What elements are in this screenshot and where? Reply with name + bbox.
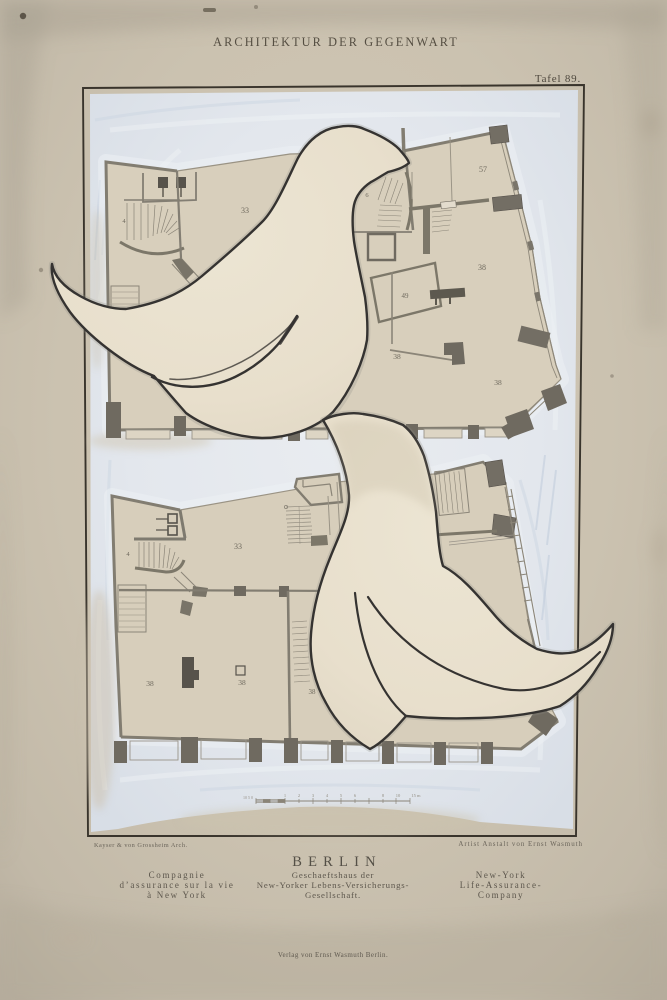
svg-text:Kayser & von Grossheim Arch.: Kayser & von Grossheim Arch. bbox=[94, 842, 188, 849]
svg-text:Geschaeftshaus der: Geschaeftshaus der bbox=[292, 870, 375, 880]
svg-text:2: 2 bbox=[298, 793, 300, 798]
svg-text:49: 49 bbox=[402, 292, 410, 300]
svg-text:Compagnie: Compagnie bbox=[149, 870, 206, 880]
svg-text:38: 38 bbox=[478, 263, 486, 272]
svg-text:10: 10 bbox=[396, 793, 401, 798]
svg-text:Life-Assurance-: Life-Assurance- bbox=[460, 880, 542, 890]
svg-text:Tafel 89.: Tafel 89. bbox=[535, 73, 581, 85]
svg-text:Company: Company bbox=[478, 890, 524, 900]
svg-text:New-York: New-York bbox=[476, 870, 526, 880]
svg-text:38: 38 bbox=[309, 688, 317, 696]
svg-text:Artist Anstalt von Ernst Wasmu: Artist Anstalt von Ernst Wasmuth bbox=[458, 840, 583, 848]
svg-text:15 m: 15 m bbox=[411, 793, 421, 798]
svg-text:33: 33 bbox=[241, 206, 249, 215]
svg-text:ARCHITEKTUR DER GEGENWART: ARCHITEKTUR DER GEGENWART bbox=[213, 35, 459, 49]
svg-text:57: 57 bbox=[479, 165, 487, 174]
svg-text:BERLIN: BERLIN bbox=[292, 854, 382, 870]
svg-text:d’assurance sur la vie: d’assurance sur la vie bbox=[119, 880, 234, 890]
svg-text:New-Yorker Lebens-Versicherung: New-Yorker Lebens-Versicherungs- bbox=[257, 880, 409, 890]
svg-text:1: 1 bbox=[284, 793, 286, 798]
svg-text:38: 38 bbox=[238, 678, 246, 687]
svg-text:Gesellschaft.: Gesellschaft. bbox=[305, 890, 361, 900]
svg-text:10 5 0: 10 5 0 bbox=[243, 795, 253, 800]
svg-text:38: 38 bbox=[494, 378, 502, 387]
svg-text:38: 38 bbox=[393, 352, 401, 361]
svg-text:Verlag von Ernst Wasmuth Berl: Verlag von Ernst Wasmuth Berlin. bbox=[278, 951, 388, 959]
svg-text:38: 38 bbox=[146, 679, 154, 688]
svg-text:à New York: à New York bbox=[147, 890, 207, 900]
svg-text:33: 33 bbox=[234, 542, 242, 551]
